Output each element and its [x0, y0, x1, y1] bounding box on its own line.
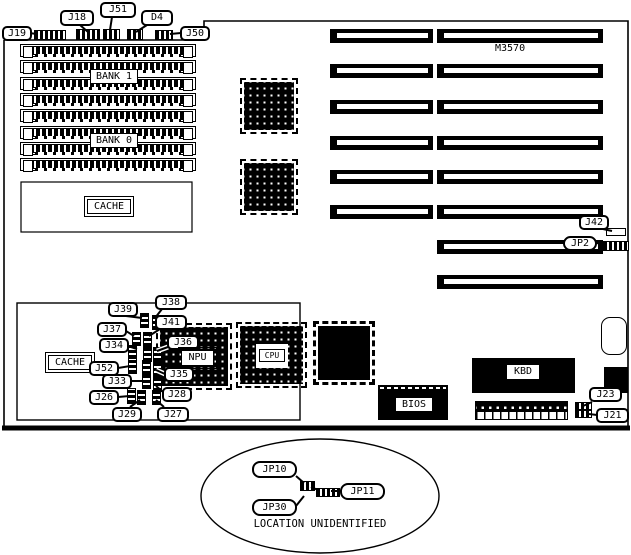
callout-d4-label: D4 [151, 13, 163, 23]
callout-j23: J23 [589, 387, 622, 402]
pointer-j23 [583, 402, 592, 406]
callout-j26: J26 [89, 390, 119, 405]
callout-j34: J34 [99, 338, 129, 353]
callout-j37: J37 [97, 322, 127, 337]
callout-jp2: JP2 [563, 236, 597, 251]
callout-j19: J19 [2, 26, 32, 41]
pointer-lines [29, 17, 612, 506]
pointer-jp2 [596, 243, 605, 244]
callout-j51-label: J51 [109, 5, 127, 15]
trace-jp10-jp11 [311, 487, 318, 490]
callout-j38: J38 [155, 295, 187, 310]
callout-j19-label: J19 [8, 29, 26, 39]
callout-j39: J39 [108, 302, 138, 317]
callout-j29: J29 [112, 407, 142, 422]
callout-jp30: JP30 [252, 499, 297, 516]
pointer-jp10 [296, 476, 304, 483]
callout-jp11: JP11 [340, 483, 385, 500]
motherboard-diagram: J19 J18 J51 D4 J50 BANK 1 BANK 0 CACHE M… [0, 0, 631, 555]
cache-tag-label: CACHE [48, 355, 92, 370]
pointer-j29 [130, 400, 140, 407]
callout-j21: J21 [596, 408, 629, 423]
callout-j33: J33 [102, 374, 132, 389]
pointer-j18 [80, 25, 88, 32]
callout-jp10: JP10 [252, 461, 297, 478]
pointer-j52 [118, 366, 130, 368]
pointer-j27 [156, 400, 164, 407]
callout-j35: J35 [164, 367, 194, 382]
callout-j36: J36 [167, 335, 199, 350]
callout-j27: J27 [157, 407, 189, 422]
pointer-j34 [128, 346, 137, 349]
callout-j50-label: J50 [186, 29, 204, 39]
pointer-jp30 [296, 496, 304, 506]
callout-j42: J42 [579, 215, 609, 230]
pointer-d4 [136, 25, 147, 32]
pointer-lines-layer [0, 0, 631, 555]
callout-j51: J51 [100, 2, 136, 18]
pointer-j26 [118, 396, 129, 397]
callout-j50: J50 [180, 26, 210, 41]
pointer-j41 [149, 329, 160, 336]
npu-label: NPU [181, 350, 214, 366]
callout-j28: J28 [162, 387, 192, 402]
callout-d4: D4 [141, 10, 173, 26]
callout-j41: J41 [155, 315, 187, 330]
pointer-j51 [110, 17, 112, 30]
pointer-j37 [126, 331, 134, 336]
callout-j18: J18 [60, 10, 94, 26]
callout-j18-label: J18 [68, 13, 86, 23]
